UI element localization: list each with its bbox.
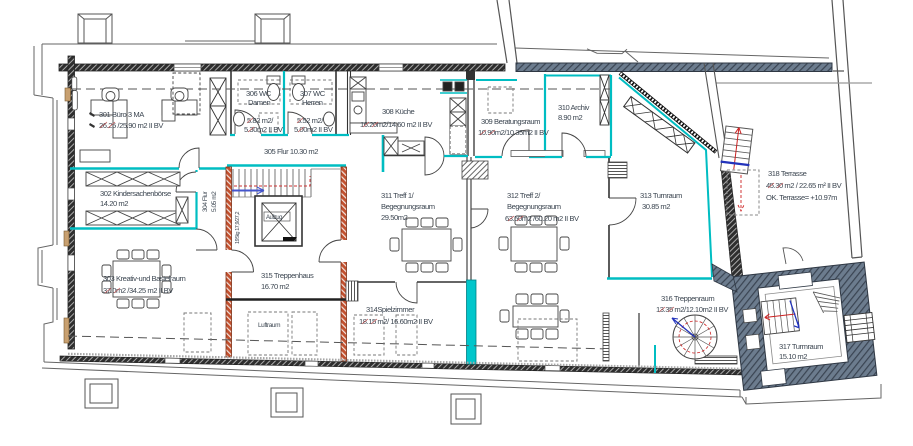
svg-text:Begegnungsraum: Begegnungsraum (381, 202, 435, 211)
svg-text:63.50m2 /60.20 m2 II BV: 63.50m2 /60.20 m2 II BV (505, 214, 580, 223)
svg-text:5.82 m2/: 5.82 m2/ (247, 116, 274, 125)
svg-text:303 Kreativ-und Bastelraum: 303 Kreativ-und Bastelraum (103, 274, 186, 283)
svg-text:10.90m2/10.35m2 II BV: 10.90m2/10.35m2 II BV (478, 128, 550, 137)
svg-text:5.30m2 II BV: 5.30m2 II BV (244, 125, 284, 134)
svg-text:OK. Terrasse= +10.97m: OK. Terrasse= +10.97m (766, 193, 837, 202)
svg-text:5.52 m2/: 5.52 m2/ (297, 116, 324, 125)
svg-text:Begegnungsraum: Begegnungsraum (507, 202, 561, 211)
svg-text:14.20 m2: 14.20 m2 (100, 199, 128, 208)
svg-text:37.0m2 /34.25 m2 II BV: 37.0m2 /34.25 m2 II BV (103, 286, 174, 295)
svg-text:316 Treppenraum: 316 Treppenraum (661, 294, 714, 303)
svg-text:311 Treff 1/: 311 Treff 1/ (381, 191, 415, 200)
svg-text:301 Büro 3 MA: 301 Büro 3 MA (99, 110, 145, 119)
svg-text:29.50m2: 29.50m2 (381, 213, 408, 222)
svg-text:5.05 m2: 5.05 m2 (211, 191, 218, 212)
svg-text:16.70 m2: 16.70 m2 (261, 282, 289, 291)
svg-text:13.35 m2/12.10m2 II BV: 13.35 m2/12.10m2 II BV (656, 305, 729, 314)
svg-text:307 WC: 307 WC (300, 89, 326, 98)
svg-text:317 Turmraum: 317 Turmraum (779, 342, 823, 351)
svg-text:308 Küche: 308 Küche (382, 107, 414, 116)
svg-text:26.25 /25.90 m2 II BV: 26.25 /25.90 m2 II BV (99, 121, 164, 130)
svg-text:Herren: Herren (302, 98, 323, 107)
svg-text:306 WC: 306 WC (246, 89, 272, 98)
svg-text:309 Beratungsraum: 309 Beratungsraum (481, 117, 540, 126)
svg-text:18.15 m2/ 16.60m2 II BV: 18.15 m2/ 16.60m2 II BV (359, 317, 434, 326)
svg-text:16.20m2/14.60 m2 II BV: 16.20m2/14.60 m2 II BV (360, 120, 433, 129)
svg-text:318 Terrasse: 318 Terrasse (768, 169, 807, 178)
svg-text:45.30 m2 / 22.65 m² II BV: 45.30 m2 / 22.65 m² II BV (766, 181, 843, 190)
svg-text:302 Kindersachenbörse: 302 Kindersachenbörse (100, 189, 171, 198)
svg-text:304 Flur: 304 Flur (202, 190, 209, 212)
svg-text:30.85 m2: 30.85 m2 (642, 202, 670, 211)
svg-text:19Stg 17,9/27,2: 19Stg 17,9/27,2 (235, 212, 241, 244)
svg-text:310 Archiv: 310 Archiv (558, 103, 590, 112)
svg-text:Luftraum: Luftraum (258, 322, 280, 329)
svg-text:Damen: Damen (248, 98, 270, 107)
svg-text:313 Turnraum: 313 Turnraum (640, 191, 682, 200)
svg-text:8.90 m2: 8.90 m2 (558, 113, 583, 122)
svg-text:314Spielzimmer: 314Spielzimmer (366, 305, 415, 314)
svg-text:305 Flur 10.30 m2: 305 Flur 10.30 m2 (264, 147, 318, 156)
svg-text:5.00m2 II BV: 5.00m2 II BV (294, 125, 334, 134)
svg-text:312 Treff 2/: 312 Treff 2/ (507, 191, 541, 200)
svg-text:Aufzug: Aufzug (266, 215, 282, 221)
svg-text:315 Treppenhaus: 315 Treppenhaus (261, 271, 314, 280)
svg-text:15.10 m2: 15.10 m2 (779, 352, 807, 361)
